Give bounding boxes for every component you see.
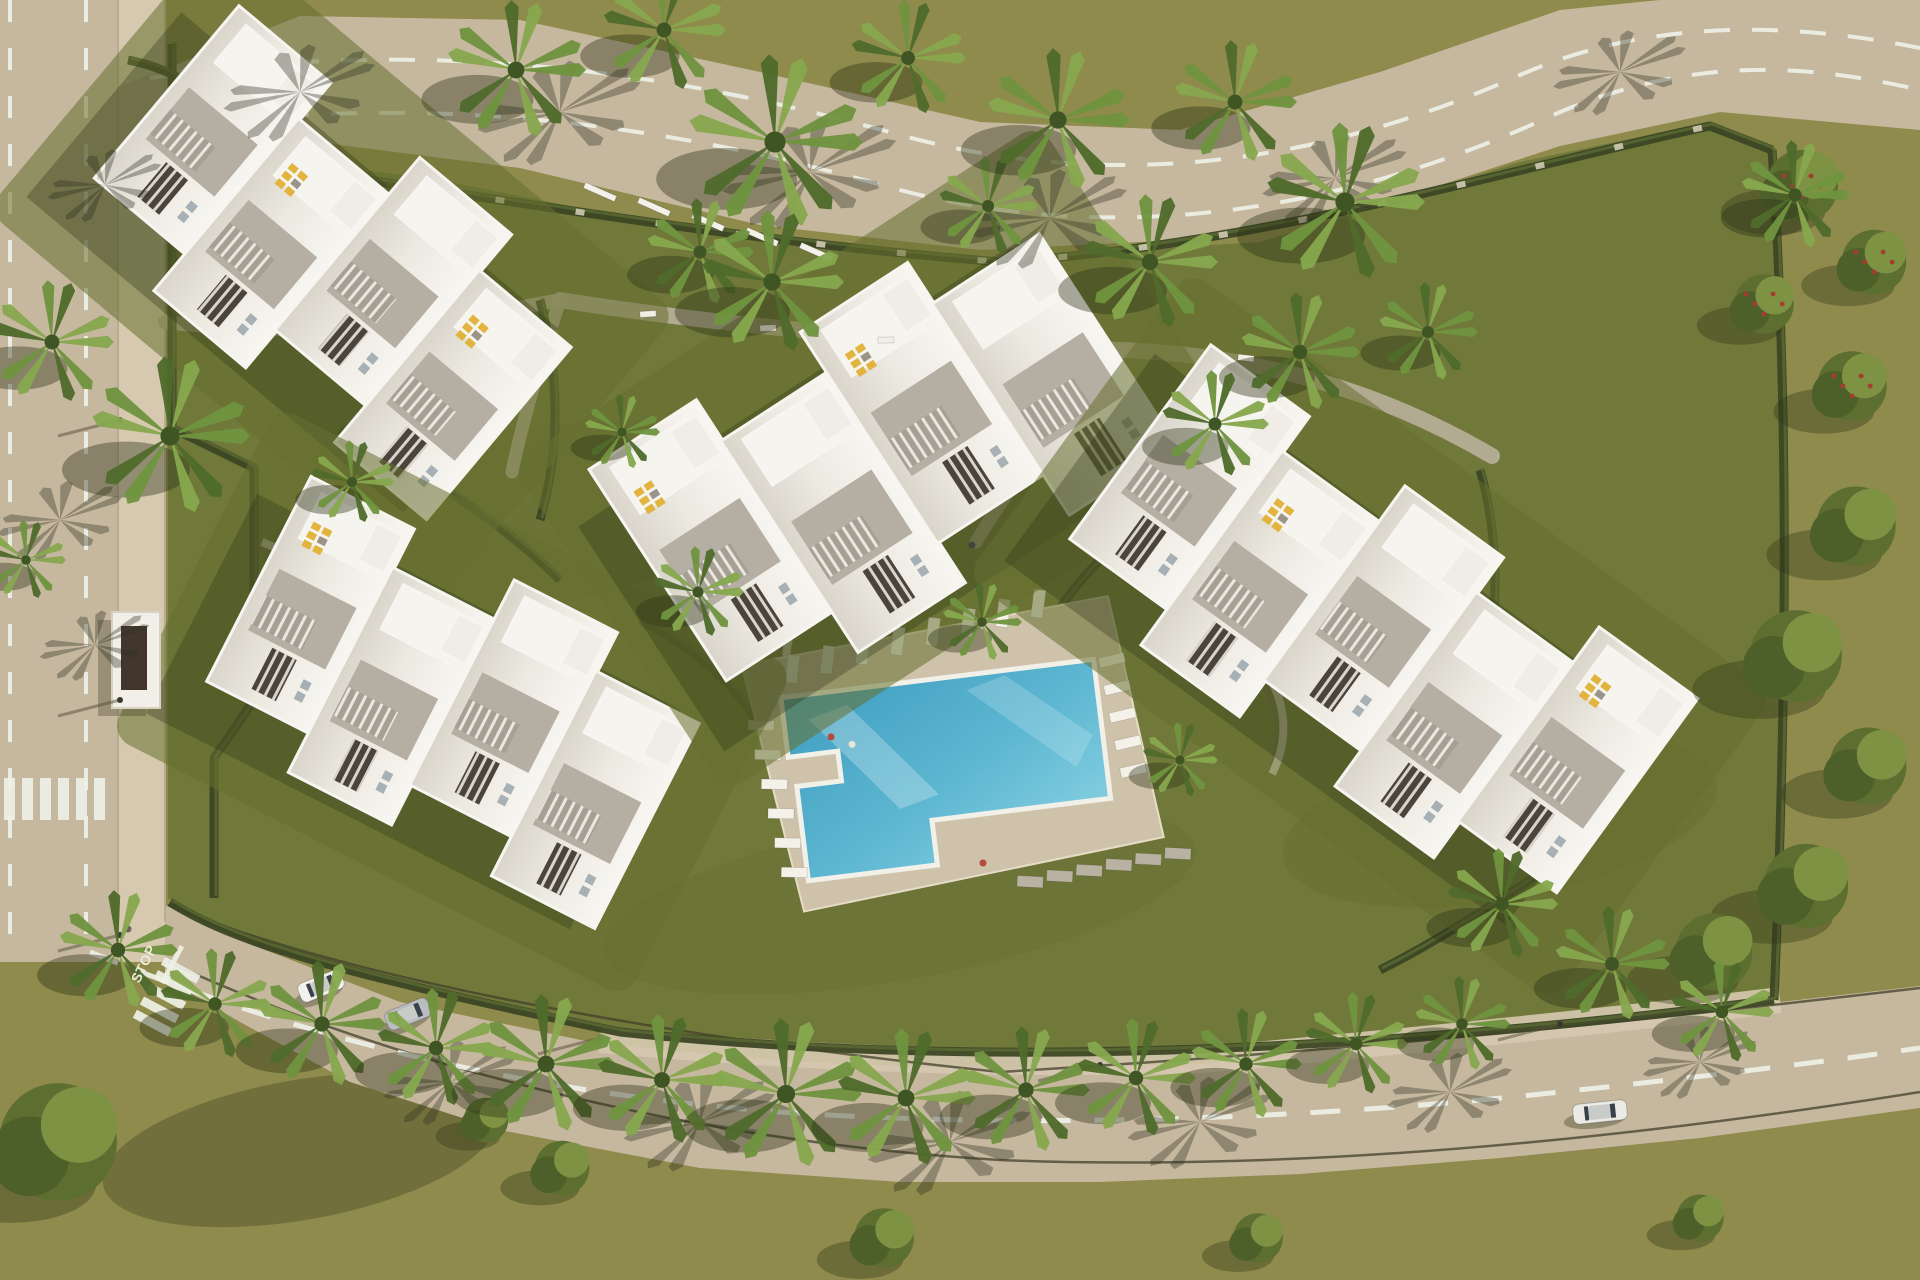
palm-crown — [538, 1056, 555, 1073]
palm-crown — [1422, 326, 1434, 338]
aerial-render-canvas: STOP — [0, 0, 1920, 1280]
palm-crown — [1293, 345, 1307, 359]
flowering-bush — [1853, 250, 1858, 255]
palm-crown — [347, 477, 357, 487]
palm-crown — [1605, 957, 1619, 971]
tree-canopy-highlight — [1703, 916, 1753, 966]
palm-crown — [977, 617, 987, 627]
sun-lounger — [1076, 864, 1103, 876]
palm-crown — [1129, 1071, 1143, 1085]
palm-crown — [617, 427, 626, 436]
bench — [640, 310, 656, 317]
flowering-bush — [1868, 384, 1873, 389]
palm-crown — [45, 335, 60, 350]
palm-crown — [1495, 897, 1508, 910]
palm-crown — [1716, 1006, 1728, 1018]
tree-canopy-highlight — [554, 1142, 589, 1177]
flowering-bush — [1831, 374, 1836, 379]
flowering-bush — [1809, 174, 1814, 179]
sun-lounger — [1135, 853, 1162, 865]
street-lamp — [1557, 1021, 1563, 1027]
palm-crown — [764, 131, 785, 152]
person — [980, 860, 987, 867]
flowering-bush — [1881, 250, 1886, 255]
tree-canopy-highlight — [1844, 489, 1895, 540]
palm-crown — [777, 1085, 795, 1103]
palm-crown — [1018, 1082, 1033, 1097]
palm-crown — [898, 1090, 915, 1107]
palm-crown — [160, 426, 179, 445]
crosswalk-bar — [40, 778, 51, 820]
palm-crown — [21, 555, 31, 565]
tree-canopy-highlight — [1857, 730, 1907, 780]
sun-lounger — [761, 779, 787, 789]
palm-crown — [429, 1041, 443, 1055]
tree-canopy-highlight — [1865, 232, 1907, 274]
sun-lounger — [1046, 870, 1073, 882]
palm-crown — [901, 51, 915, 65]
sun-lounger — [1017, 876, 1044, 888]
flowering-bush — [1753, 302, 1758, 307]
palm-crown — [694, 246, 707, 259]
car-roof — [1588, 1104, 1612, 1120]
sun-lounger — [1165, 847, 1192, 859]
palm-crown — [1228, 95, 1243, 110]
crosswalk-bar — [4, 778, 15, 820]
palm-crown — [692, 586, 703, 597]
palm-crown — [1335, 192, 1354, 211]
palm-crown — [1788, 188, 1801, 201]
tree-canopy-highlight — [1783, 613, 1842, 672]
flowering-bush — [1743, 292, 1748, 297]
crosswalk-bar — [22, 778, 33, 820]
palm-crown — [1142, 254, 1158, 270]
palm-crown — [1350, 1038, 1362, 1050]
tree-canopy-highlight — [1842, 354, 1887, 399]
crosswalk-bar — [94, 778, 105, 820]
crosswalk-bar — [76, 778, 87, 820]
flowering-bush — [1771, 292, 1776, 297]
street-lamp — [117, 697, 123, 703]
flowering-bush — [1780, 302, 1785, 307]
flowering-bush — [1890, 260, 1895, 265]
palm-crown — [1239, 1057, 1252, 1070]
tree-canopy-highlight — [41, 1087, 117, 1163]
sun-lounger — [775, 838, 801, 848]
palm-crown — [1175, 755, 1184, 764]
tree-canopy-highlight — [1693, 1196, 1723, 1226]
palm-crown — [1456, 1018, 1468, 1030]
flowering-bush — [1781, 174, 1786, 179]
palm-crown — [111, 943, 125, 957]
flowering-bush — [1859, 374, 1864, 379]
crosswalk-bar — [58, 778, 69, 820]
palm-crown — [654, 1072, 670, 1088]
palm-crown — [208, 997, 221, 1010]
palm-crown — [657, 23, 672, 38]
palm-crown — [1209, 418, 1222, 431]
palm-crown — [982, 200, 994, 212]
flowering-bush — [1762, 312, 1767, 317]
palm-crown — [508, 62, 525, 79]
sun-lounger — [768, 808, 794, 818]
palm-crown — [314, 1016, 329, 1031]
sun-lounger — [1105, 859, 1132, 871]
flowering-bush — [1850, 394, 1855, 399]
tree-canopy-highlight — [1251, 1215, 1283, 1247]
bench — [878, 337, 894, 344]
palm-crown — [1049, 111, 1066, 128]
aerial-photo: STOP — [0, 0, 1920, 1280]
tree-canopy-highlight — [875, 1210, 913, 1248]
person — [969, 542, 976, 549]
flowering-bush — [1863, 260, 1868, 265]
sun-lounger — [781, 867, 807, 877]
flowering-bush — [1872, 270, 1877, 275]
palm-crown — [763, 273, 780, 290]
tree-canopy-highlight — [1794, 847, 1848, 901]
flowering-bush — [1841, 384, 1846, 389]
